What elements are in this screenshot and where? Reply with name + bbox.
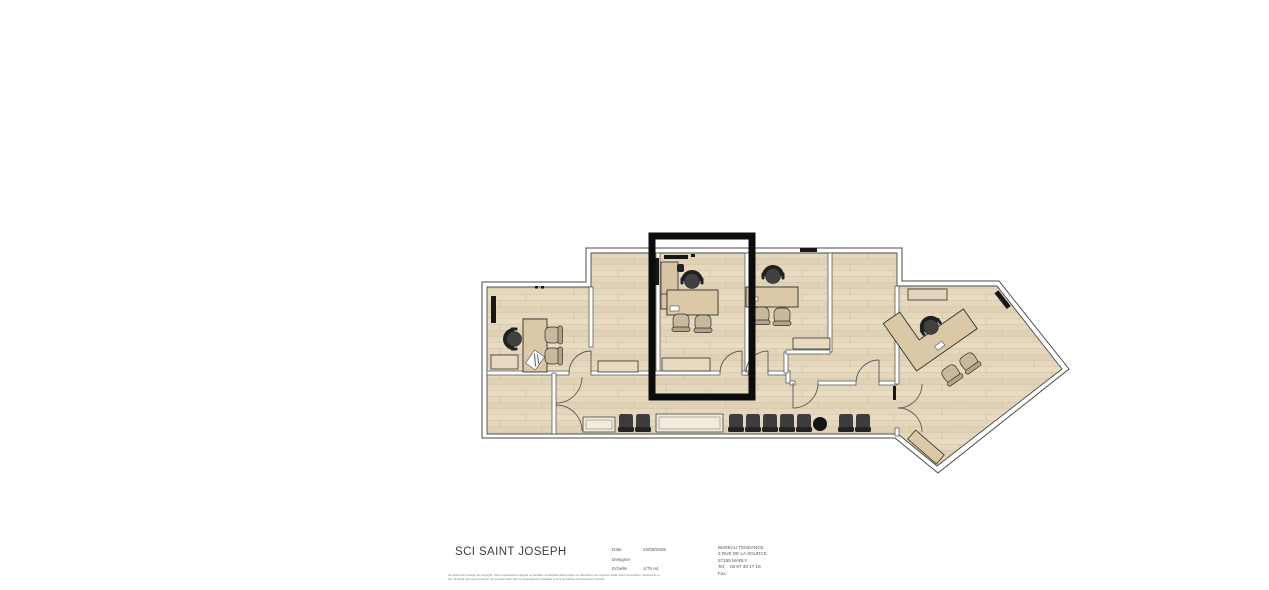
waiting-chair	[728, 414, 744, 432]
waiting-chair	[618, 414, 634, 432]
drawing-sheet: SCI SAINT JOSEPH Date 22/09/2025 Designe…	[0, 0, 1269, 590]
cabinet	[491, 355, 518, 369]
project-title: SCI SAINT JOSEPH	[455, 546, 567, 558]
plant	[677, 264, 684, 272]
desk-item	[670, 306, 679, 311]
company-block: BUREAU TENDANCE 2 RUE DE LA SOURCE 57155…	[718, 545, 767, 577]
guest-chair	[545, 347, 563, 365]
waiting-chair	[762, 414, 778, 432]
fax-label: Fax:	[718, 571, 767, 577]
sideboard-middle	[598, 361, 638, 372]
copyright-notice: Ce dessin est protégé par copyright. Tou…	[448, 573, 716, 582]
tel-value: 03 87 30 17 18	[730, 564, 761, 570]
round-table	[813, 417, 827, 431]
field-label: Designer	[612, 555, 643, 565]
low-cabinet	[662, 358, 710, 371]
shelf-office-3-top	[800, 248, 817, 252]
company-address1: 2 RUE DE LA SOURCE	[718, 551, 767, 557]
guest-chair	[545, 326, 563, 344]
waiting-chair	[855, 414, 871, 432]
waiting-chair	[635, 414, 651, 432]
waiting-chair	[796, 414, 812, 432]
field-label: Date	[612, 545, 643, 555]
field-value: 22/09/2025	[643, 545, 666, 555]
waiting-chair	[838, 414, 854, 432]
copyright-line2: par n'importe quel autre procédé) de ce …	[448, 577, 716, 581]
waiting-chair	[745, 414, 761, 432]
waiting-chair	[779, 414, 795, 432]
floor-plan	[0, 0, 1269, 590]
shelf-office-2-top	[664, 255, 688, 259]
field-designer: Designer	[612, 555, 666, 565]
tel-label: Tel:	[718, 564, 730, 570]
guest-chair	[694, 315, 712, 333]
guest-chair	[773, 308, 791, 326]
long-sideboard	[656, 414, 723, 432]
title-block-fields: Date 22/09/2025 Designer Echelle 1/75 A4	[612, 545, 666, 574]
field-date: Date 22/09/2025	[612, 545, 666, 555]
radiator-left-office	[491, 296, 496, 323]
console-table	[583, 417, 615, 432]
sideboard	[908, 289, 947, 300]
guest-chair	[672, 314, 690, 332]
cabinet	[793, 338, 830, 349]
